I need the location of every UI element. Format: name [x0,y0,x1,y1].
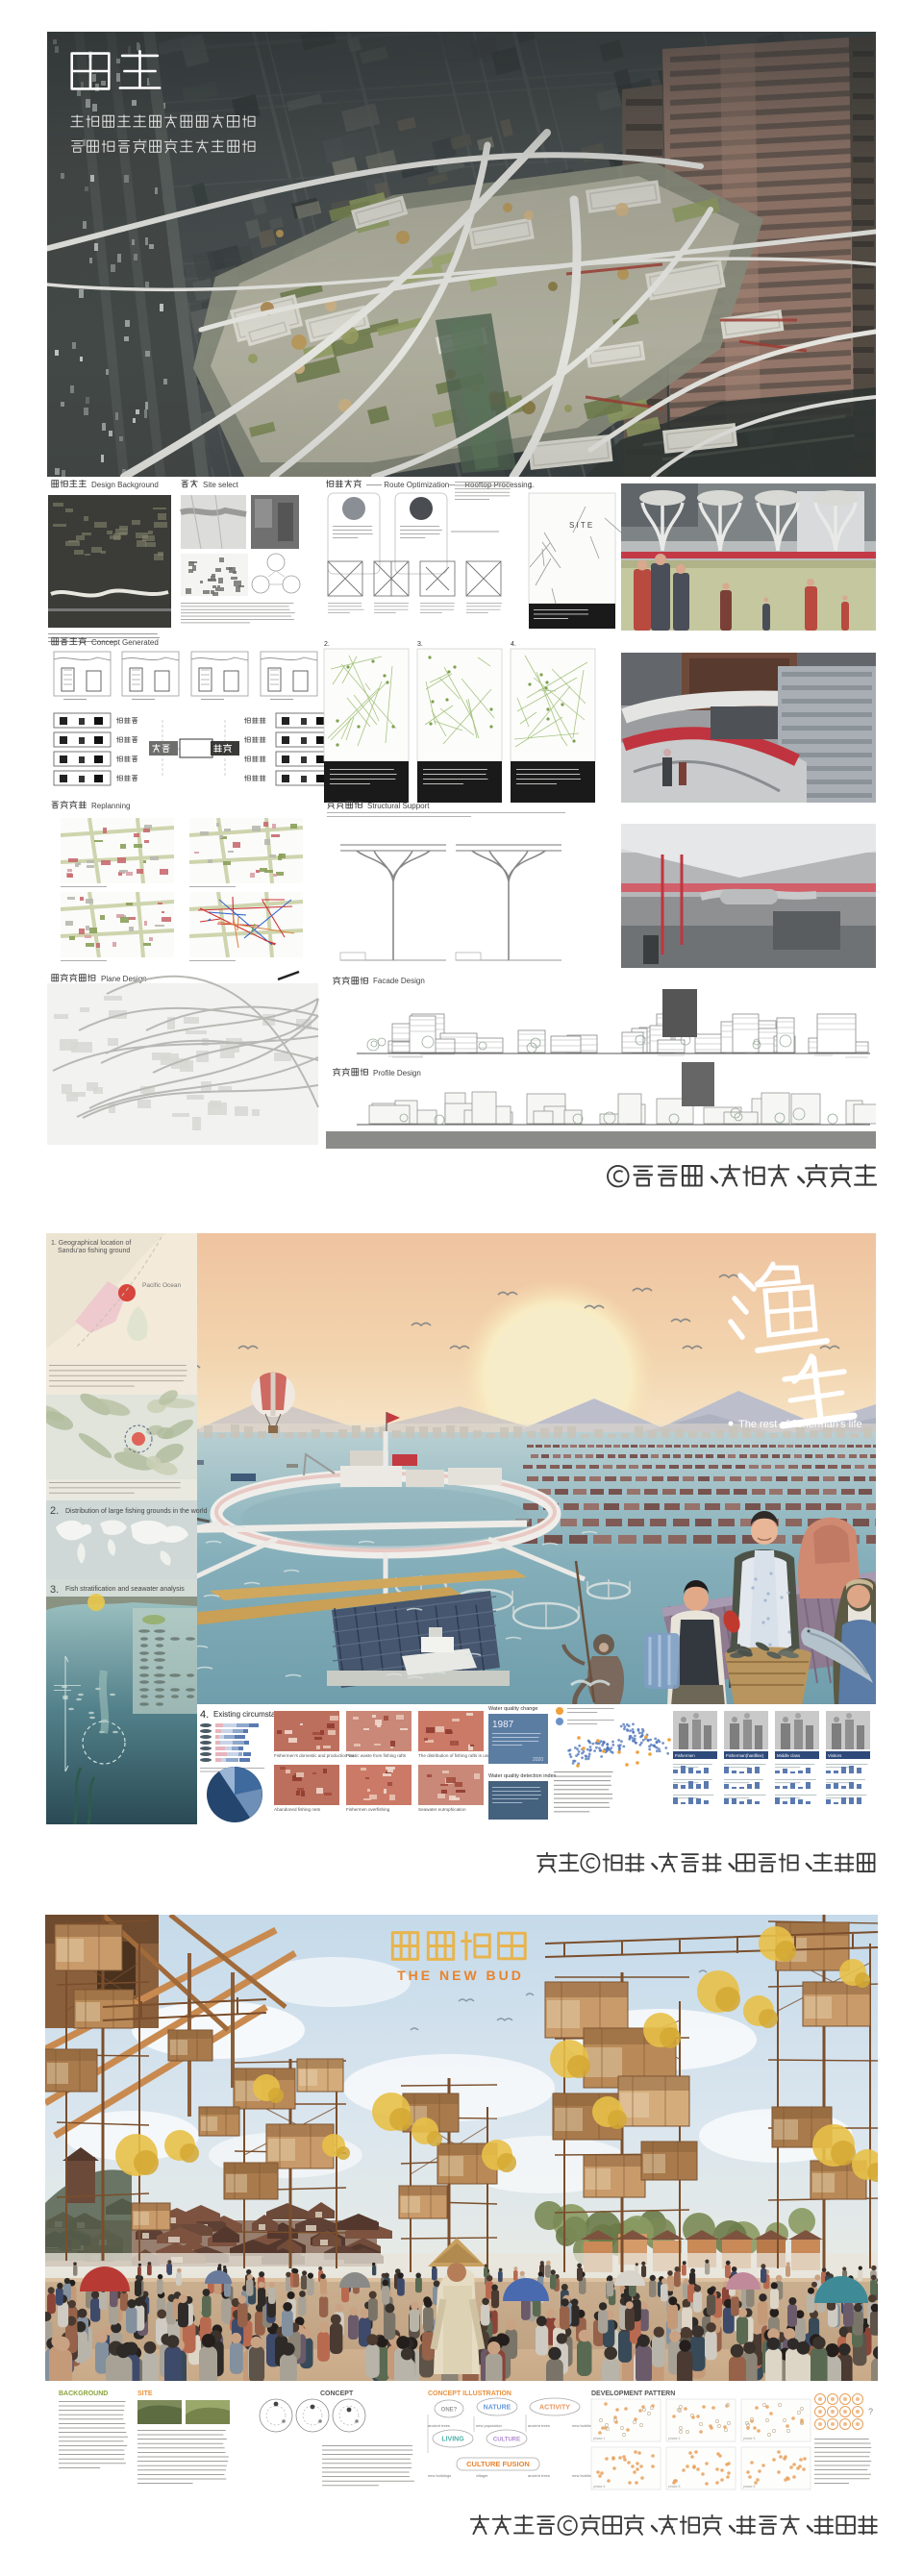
svg-text:LIVING: LIVING [441,2437,464,2443]
svg-text:Profile Design: Profile Design [373,1069,421,1077]
svg-text:SITE: SITE [137,2390,153,2397]
svg-text:Visitors: Visitors [828,1753,842,1758]
svg-text:CULTURE FUSION: CULTURE FUSION [466,2460,530,2468]
svg-text:2.: 2. [50,1505,59,1517]
svg-text:Seawater eutrophication: Seawater eutrophication [418,1807,466,1812]
svg-text:S I T E: S I T E [569,521,592,530]
svg-text:3.: 3. [417,641,423,648]
svg-text:Distribution of large fishing: Distribution of large fishing grounds in… [65,1508,208,1515]
svg-text:phase 3: phase 3 [743,2437,756,2440]
svg-text:Fish stratification and seawat: Fish stratification and seawater analysi… [65,1586,185,1593]
svg-text:Plastic waste from fishing raf: Plastic waste from fishing rafts [346,1753,407,1758]
svg-text:DEVELOPMENT PATTERN: DEVELOPMENT PATTERN [591,2390,675,2397]
svg-text:phase 4: phase 4 [593,2485,606,2489]
svg-text:new buildings: new buildings [428,2473,451,2478]
svg-text:Pacific Ocean: Pacific Ocean [142,1282,181,1289]
svg-text:new population: new population [476,2423,502,2428]
svg-text:2020: 2020 [533,1757,543,1763]
svg-text:Replanning: Replanning [91,802,130,810]
svg-text:1. Geographical location of: 1. Geographical location of [51,1240,131,1247]
svg-text:phase 1: phase 1 [593,2437,606,2440]
svg-text:Plane Design: Plane Design [101,975,147,983]
svg-text:CULTURE: CULTURE [493,2438,520,2443]
svg-text:ONE?: ONE? [441,2408,458,2414]
svg-text:Water quality change: Water quality change [488,1706,537,1712]
svg-text:Site select: Site select [203,481,239,489]
svg-text:4.: 4. [200,1709,209,1721]
svg-text:Middle class: Middle class [777,1753,801,1758]
svg-text:ancient trees: ancient trees [528,2473,550,2478]
svg-text:1987: 1987 [492,1720,514,1730]
svg-text:ACTIVITY: ACTIVITY [539,2405,570,2412]
svg-text:The distribution of fishing ra: The distribution of fishing rafts is unr… [418,1753,494,1758]
svg-text:1.: 1. [529,483,535,489]
svg-text:Concept Generated: Concept Generated [91,638,159,647]
svg-text:Fishermen: Fishermen [675,1753,695,1758]
svg-text:2.: 2. [324,641,330,648]
svg-text:ancient trees: ancient trees [428,2423,450,2428]
svg-text:Water quality detection index: Water quality detection index [488,1773,557,1779]
svg-text:Fisherman(hardline): Fisherman(hardline) [726,1753,764,1758]
svg-text:Fishermen's domestic and produ: Fishermen's domestic and production wa [274,1753,355,1758]
svg-text:3.: 3. [50,1584,59,1596]
svg-text:Structural Support: Structural Support [367,802,430,810]
svg-text:Fishermen overfishing: Fishermen overfishing [346,1807,390,1812]
svg-text:villager: villager [476,2473,488,2478]
svg-text:Facade Design: Facade Design [373,977,425,985]
svg-text:phase 2: phase 2 [668,2437,681,2440]
svg-text:Design Background: Design Background [91,481,159,489]
svg-text:4.: 4. [511,641,516,648]
svg-text:ancient trees: ancient trees [528,2423,550,2428]
svg-text:phase 6: phase 6 [743,2485,756,2489]
svg-text:phase 5: phase 5 [668,2485,681,2489]
svg-text:CONCEPT: CONCEPT [320,2390,354,2397]
svg-text:CONCEPT ILLUSTRATION: CONCEPT ILLUSTRATION [428,2390,511,2397]
svg-text:Abandoned fishing nets: Abandoned fishing nets [274,1807,321,1812]
svg-text:Sandu'ao fishing ground: Sandu'ao fishing ground [58,1248,130,1254]
svg-text:BACKGROUND: BACKGROUND [59,2390,108,2397]
svg-text:NATURE: NATURE [484,2405,511,2412]
svg-text:THE NEW BUD: THE NEW BUD [397,1968,524,1983]
svg-text:The rest of fisherman's life: The rest of fisherman's life [738,1419,862,1430]
svg-text:?: ? [868,2407,873,2416]
